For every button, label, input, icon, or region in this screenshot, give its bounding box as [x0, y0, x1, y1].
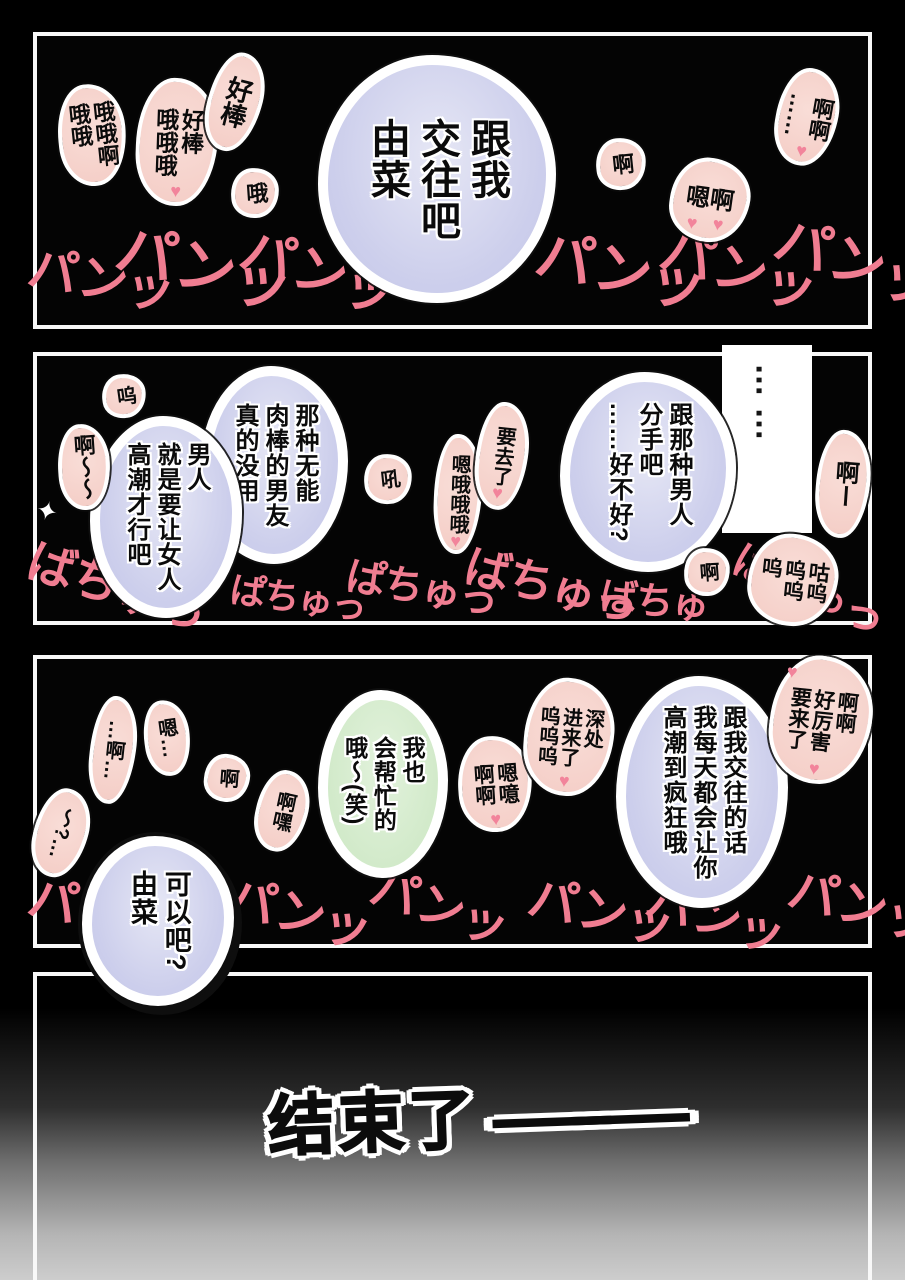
burst-text: …啊…	[99, 719, 128, 781]
burst-text: 要去了	[488, 425, 517, 487]
bubble-text: 我也 会帮忙的 哦〜(笑)	[340, 736, 426, 832]
burst-text: 哦	[242, 181, 268, 205]
speech-bubble-okay: 可以吧? 由菜	[82, 836, 234, 1006]
burst-text: 〜?…	[44, 805, 78, 861]
ending-text: 结束了	[267, 1082, 479, 1163]
burst-text: 啊ー	[828, 459, 858, 509]
speech-bubble-break-up: 跟那种男人 分手吧 ……好不好?	[560, 372, 736, 572]
burst-text: 呜	[112, 385, 137, 408]
long-dash: ——	[493, 1075, 653, 1156]
heart-icon: ♥	[685, 213, 698, 232]
heart-icon: ♥	[786, 662, 799, 681]
heart-icon: ♥	[711, 215, 724, 234]
bubble-text: 可以吧? 由菜	[124, 870, 192, 972]
burst-text: 深处 进来了 呜呜呜	[533, 705, 604, 770]
burst-text: 好棒 哦哦哦	[150, 107, 204, 178]
burst-text: 啊嘿	[267, 789, 297, 833]
manga-page: パンッ パンッ パンッ パンッ パンッ パンッ 跟我 交往吧 由菜 哦哦啊 哦哦…	[0, 0, 905, 1280]
burst-text: 好棒	[215, 73, 256, 130]
bubble-text: 那种无能 肉棒的男友 真的没用	[229, 403, 319, 528]
burst-text: 咕呜 呜呜 呜	[756, 555, 831, 604]
silence-box: ……	[722, 345, 812, 533]
speech-bubble-date-me: 跟我交往的话 我每天都会让你 高潮到疯狂哦	[616, 676, 788, 908]
bubble-text: 男人 就是要让女人 高潮才行吧	[121, 442, 211, 592]
heart-icon: ♥	[808, 759, 821, 778]
heart-icon: ♥	[450, 532, 461, 550]
speech-bubble-real-man: 男人 就是要让女人 高潮才行吧	[90, 416, 242, 618]
burst-text: 啊	[215, 767, 239, 789]
burst-text: 哦哦啊 哦哦	[64, 100, 120, 171]
bubble-text: 跟我交往的话 我每天都会让你 高潮到疯狂哦	[657, 705, 747, 880]
heart-icon: ♥	[795, 141, 809, 161]
speech-bubble-help-too: 我也 会帮忙的 哦〜(笑)	[318, 690, 448, 878]
bubble-text: 跟我 交往吧 由菜	[362, 118, 512, 241]
ending-caption: 结束了——	[266, 1063, 585, 1170]
burst-text: 嗯哦哦哦	[445, 454, 470, 535]
burst-text: 啊	[695, 561, 719, 583]
heart-icon: ♥	[490, 810, 502, 829]
burst-text: 嗯…	[153, 717, 181, 760]
speech-bubble-confess: 跟我 交往吧 由菜	[318, 55, 556, 303]
burst-text: 啊啊 ……	[779, 91, 835, 143]
burst-text: 啊	[608, 152, 635, 176]
burst-text: 啊啊 好厉害 要来了	[783, 685, 860, 755]
bubble-text: 跟那种男人 分手吧 ……好不好?	[603, 402, 693, 543]
heart-icon: ♥	[558, 771, 570, 790]
heart-icon: ♥	[491, 483, 504, 502]
burst-text: 嗯噫 啊啊	[470, 761, 520, 806]
burst-text: 啊〜〜	[69, 433, 98, 501]
burst-text: 吼	[376, 468, 400, 490]
heart-icon: ♥	[170, 182, 181, 200]
silence-dots: ……	[746, 363, 789, 451]
